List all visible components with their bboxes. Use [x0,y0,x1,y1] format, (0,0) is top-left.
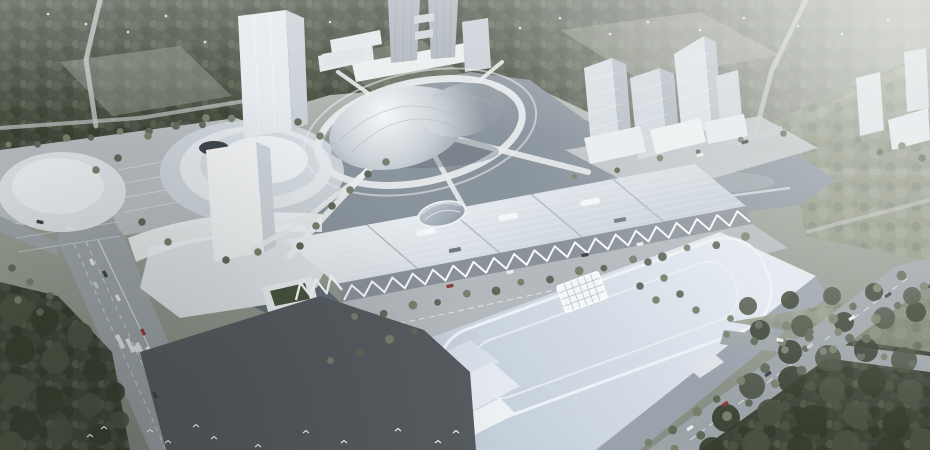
scene-canvas [0,0,930,450]
aerial-rendering [0,0,930,450]
vignette-bottom-left [0,0,930,450]
